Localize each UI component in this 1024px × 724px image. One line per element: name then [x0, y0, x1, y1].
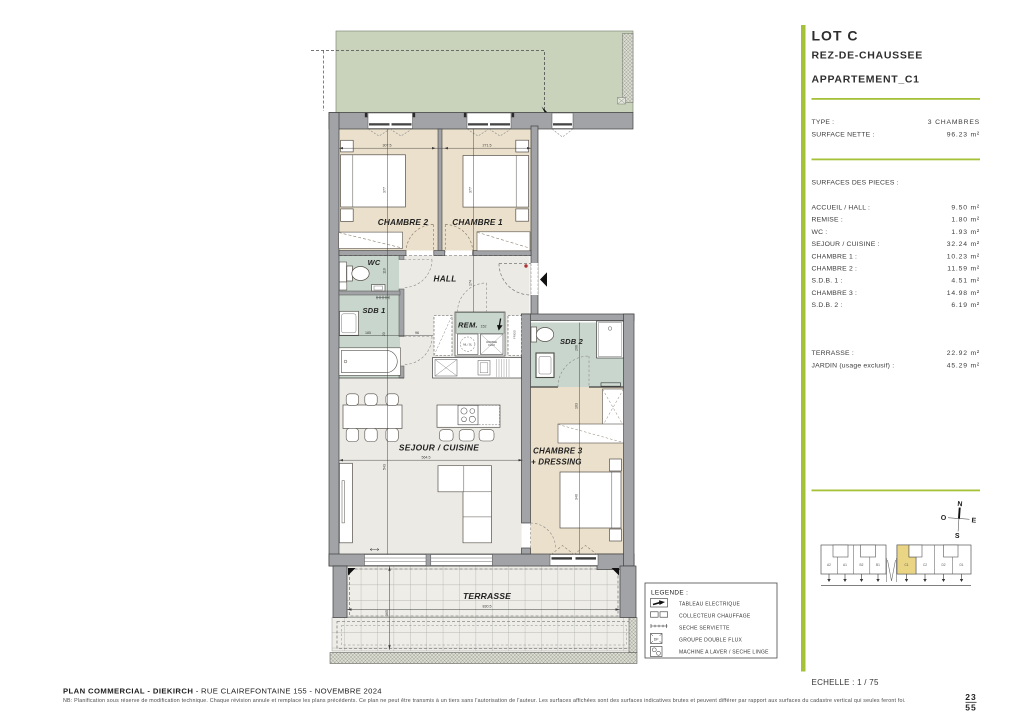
svg-text:COLLECTEUR CHAUFFAGE: COLLECTEUR CHAUFFAGE — [679, 614, 751, 620]
svg-text:110: 110 — [383, 268, 387, 274]
svg-text:B1: B1 — [876, 563, 880, 567]
svg-text:ACCUEIL / HALL :: ACCUEIL / HALL : — [812, 205, 871, 212]
svg-text:564.5: 564.5 — [422, 455, 431, 459]
svg-text:A1: A1 — [843, 563, 847, 567]
svg-text:E: E — [971, 517, 976, 524]
svg-text:S.D.B. 1 :: S.D.B. 1 : — [812, 278, 843, 285]
svg-text:20: 20 — [382, 332, 386, 336]
svg-text:S: S — [955, 533, 960, 540]
svg-text:GROUPE DOUBLE FLUX: GROUPE DOUBLE FLUX — [679, 638, 743, 644]
svg-text:3 CHAMBRES: 3 CHAMBRES — [928, 119, 980, 126]
svg-text:271.5: 271.5 — [483, 143, 492, 147]
svg-text:SEJOUR / CUISINE :: SEJOUR / CUISINE : — [812, 241, 880, 248]
svg-text:O: O — [940, 515, 946, 522]
svg-text:LEGENDE :: LEGENDE : — [651, 590, 688, 597]
svg-text:11.59 m²: 11.59 m² — [947, 266, 980, 273]
svg-text:14.98 m²: 14.98 m² — [947, 290, 980, 297]
svg-text:32.24 m²: 32.24 m² — [947, 241, 980, 248]
svg-text:TABLEAU ELECTRIQUE: TABLEAU ELECTRIQUE — [679, 602, 741, 608]
svg-text:ECHELLE : 1 / 75: ECHELLE : 1 / 75 — [812, 678, 879, 687]
svg-text:+ DRESSING: + DRESSING — [531, 458, 582, 467]
svg-text:1.93 m²: 1.93 m² — [951, 229, 980, 236]
svg-text:REM.: REM. — [458, 321, 478, 330]
svg-text:REZ-DE-CHAUSSEE: REZ-DE-CHAUSSEE — [812, 50, 923, 62]
svg-text:9.50 m²: 9.50 m² — [951, 205, 980, 212]
svg-text:APPARTEMENT_C1: APPARTEMENT_C1 — [812, 74, 920, 86]
svg-text:185: 185 — [365, 331, 371, 335]
svg-text:FLUX: FLUX — [488, 343, 495, 347]
svg-text:174: 174 — [469, 280, 473, 286]
svg-text:NB: Planification sous réserve: NB: Planification sous réserve de modifi… — [63, 698, 906, 704]
svg-text:JARDIN (usage exclusif) :: JARDIN (usage exclusif) : — [812, 363, 895, 370]
svg-text:377: 377 — [469, 187, 473, 193]
svg-text:C1: C1 — [904, 563, 908, 567]
svg-text:REMISE :: REMISE : — [812, 217, 843, 224]
svg-text:TERRASSE: TERRASSE — [463, 591, 511, 601]
svg-text:SURFACES DES PIECES :: SURFACES DES PIECES : — [812, 180, 899, 187]
svg-text:D1: D1 — [959, 563, 963, 567]
svg-text:340: 340 — [575, 494, 579, 500]
svg-text:152: 152 — [481, 325, 487, 329]
svg-text:377: 377 — [383, 187, 387, 193]
svg-text:10.23 m²: 10.23 m² — [947, 253, 980, 260]
svg-text:CHAMBRE 1: CHAMBRE 1 — [452, 218, 503, 227]
svg-text:WC: WC — [368, 258, 381, 267]
svg-text:DF: DF — [654, 638, 660, 642]
svg-text:ML / SL: ML / SL — [463, 343, 472, 347]
svg-text:D2: D2 — [941, 563, 945, 567]
svg-text:543: 543 — [383, 464, 387, 470]
svg-text:S.D.B. 2 :: S.D.B. 2 : — [812, 302, 843, 309]
svg-text:MACHINE A LAVER / SECHE LINGE: MACHINE A LAVER / SECHE LINGE — [679, 650, 769, 656]
svg-text:CHAMBRE 3 :: CHAMBRE 3 : — [812, 290, 858, 297]
svg-text:TERRASSE :: TERRASSE : — [812, 350, 854, 357]
svg-text:CHAMBRE 2: CHAMBRE 2 — [378, 218, 429, 227]
svg-text:206: 206 — [575, 345, 579, 351]
svg-text:HALL: HALL — [433, 275, 456, 284]
svg-text:SECHE SERVIETTE: SECHE SERVIETTE — [679, 626, 730, 632]
svg-text:SDB 1: SDB 1 — [362, 306, 385, 315]
svg-text:SEJOUR / CUISINE: SEJOUR / CUISINE — [399, 443, 479, 453]
svg-text:LOT C: LOT C — [812, 28, 859, 44]
svg-text:C2: C2 — [923, 563, 927, 567]
svg-text:307.5: 307.5 — [383, 143, 392, 147]
svg-text:B2: B2 — [860, 563, 864, 567]
svg-text:365: 365 — [385, 610, 389, 616]
svg-text:CHAMBRE 2 :: CHAMBRE 2 : — [812, 266, 858, 273]
svg-text:22.92 m²: 22.92 m² — [947, 350, 980, 357]
svg-text:45.29 m²: 45.29 m² — [947, 363, 980, 370]
svg-text:103: 103 — [575, 403, 579, 409]
svg-text:96: 96 — [415, 331, 419, 335]
svg-text:TYPE :: TYPE : — [812, 119, 835, 126]
svg-text:SURFACE NETTE :: SURFACE NETTE : — [812, 132, 875, 139]
svg-text:PLAN COMMERCIAL - DIEKIRCH - R: PLAN COMMERCIAL - DIEKIRCH - RUE CLAIREF… — [63, 687, 382, 696]
svg-text:A2: A2 — [827, 563, 831, 567]
svg-text:4.51 m²: 4.51 m² — [951, 278, 980, 285]
svg-text:96.23 m²: 96.23 m² — [947, 132, 980, 139]
svg-text:N: N — [957, 501, 963, 508]
svg-text:FRIGO: FRIGO — [513, 329, 517, 339]
svg-text:6.19 m²: 6.19 m² — [951, 302, 980, 309]
svg-text:55: 55 — [965, 703, 976, 713]
svg-text:1.80 m²: 1.80 m² — [951, 217, 980, 224]
svg-text:830.5: 830.5 — [483, 605, 492, 609]
svg-text:CHAMBRE 1 :: CHAMBRE 1 : — [812, 253, 858, 260]
svg-text:CHAMBRE 3: CHAMBRE 3 — [533, 447, 583, 456]
svg-text:WC :: WC : — [812, 229, 828, 236]
svg-text:SDB 2: SDB 2 — [560, 337, 584, 346]
svg-text:23: 23 — [965, 692, 976, 702]
